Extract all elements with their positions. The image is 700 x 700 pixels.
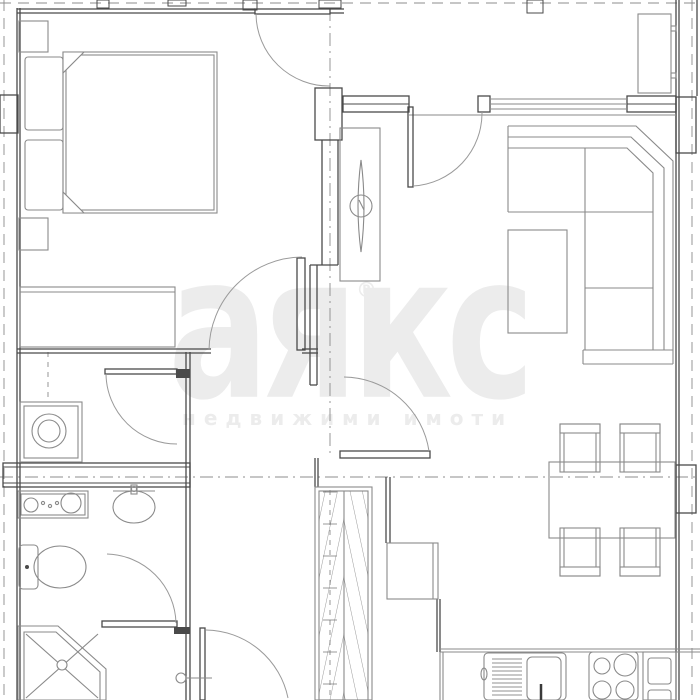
bedroom-closet	[20, 287, 175, 347]
washing-machine	[20, 402, 82, 462]
floor-plan-canvas: аякс ® недвижими имоти	[0, 0, 700, 700]
kitchen-column	[643, 652, 676, 700]
dining-chair	[560, 424, 600, 472]
bathroom-door	[102, 554, 177, 627]
bedroom-hall-door	[209, 257, 305, 350]
dining-chair	[620, 424, 660, 472]
laundry-door	[105, 369, 177, 444]
floor-plan-drawing	[0, 0, 700, 700]
double-bed	[25, 52, 217, 213]
corner-sofa	[508, 126, 673, 364]
hallway-closet	[315, 487, 372, 700]
tv-unit	[340, 128, 380, 281]
dining-table	[549, 462, 675, 538]
bedroom-entry-door	[255, 9, 330, 86]
corner-shower	[18, 626, 106, 700]
kitchen-counter	[440, 649, 700, 700]
hall-living-door	[340, 377, 430, 458]
nightstand-bottom	[19, 218, 48, 250]
vanity-unit	[18, 491, 88, 518]
storage-cabinet	[638, 14, 676, 93]
dining-chair	[560, 528, 600, 576]
kitchen-sink	[481, 653, 566, 700]
wall-basin	[113, 485, 155, 523]
nightstand-top	[19, 21, 48, 52]
hallway-cabinet	[387, 543, 438, 599]
corridor-door	[200, 628, 288, 700]
coffee-table	[508, 230, 567, 333]
door-stop	[176, 673, 212, 683]
toilet	[19, 545, 86, 589]
dining-chair	[620, 528, 660, 576]
cooktop	[589, 652, 638, 700]
balcony-door	[408, 107, 482, 187]
masonry-piers	[0, 88, 696, 513]
